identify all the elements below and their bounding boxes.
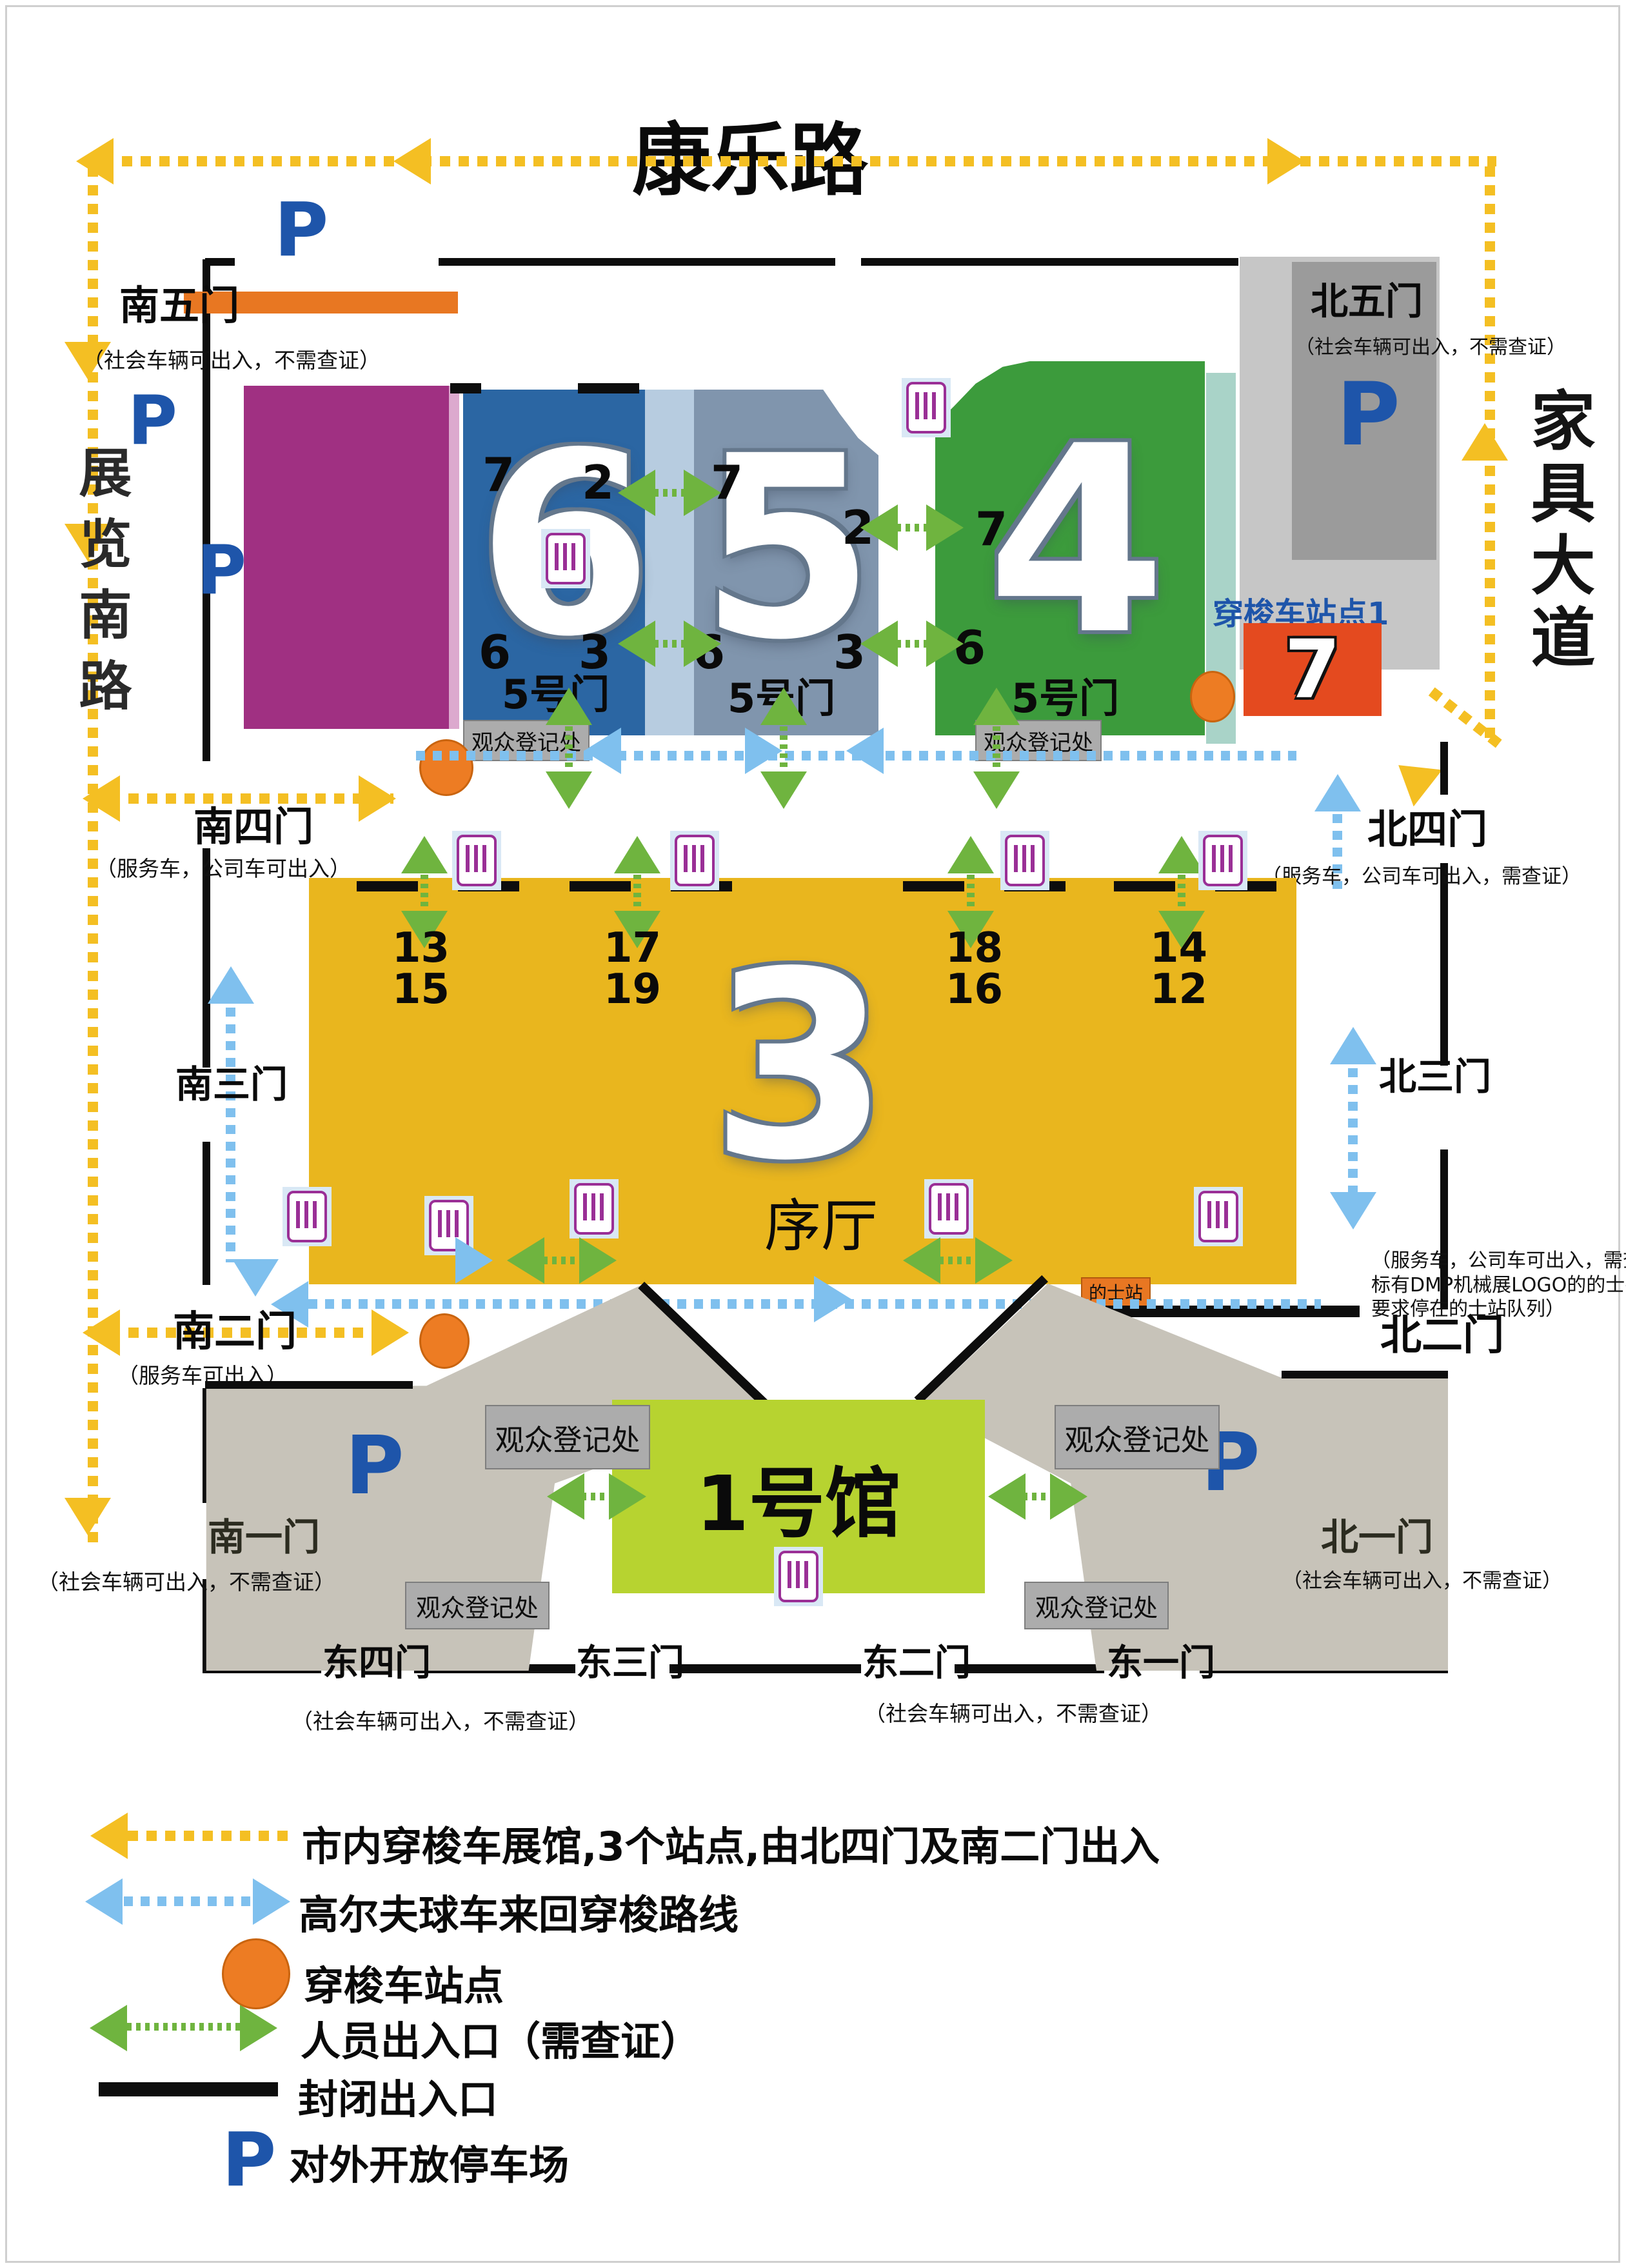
legend-golf-arrow-icon — [253, 1878, 290, 1925]
golf-route-arrow-icon — [745, 728, 782, 774]
restaurant-icon — [541, 529, 590, 588]
legend-shuttle-text: 市内穿梭车展馆,3个站点,由北四门及南二门出入 — [302, 1814, 1160, 1872]
gate-east3-label: 东三门 — [576, 1644, 684, 1684]
legend-parking-icon: P — [222, 2124, 276, 2198]
legend-personnel-text: 人员出入口（需查证） — [301, 2009, 700, 2067]
hall-3-number: 3 — [709, 939, 890, 1197]
personnel-entrance-arrow-icon — [546, 771, 592, 809]
personnel-entrance-arrow-icon — [973, 771, 1020, 809]
boundary-right — [1440, 742, 1448, 795]
door-number-pair: 14 12 — [1119, 928, 1238, 1010]
personnel-entrance-dash — [1023, 1493, 1051, 1500]
personnel-entrance-arrow-icon — [546, 688, 592, 725]
personnel-entrance-dash — [993, 726, 1000, 770]
road-zhanlan-label: 展览南路 — [62, 445, 139, 729]
golf-route-arrow-icon — [846, 728, 884, 774]
gate-south1-label: 南一门 — [208, 1517, 320, 1558]
personnel-entrance-arrow-icon — [926, 504, 964, 551]
boundary-bottom — [955, 1664, 1104, 1673]
personnel-entrance-dash — [543, 1257, 580, 1264]
registration-label: 观众登记处 — [416, 1588, 539, 1624]
gate-east1-label: 东一门 — [1107, 1644, 1215, 1684]
personnel-entrance-arrow-icon — [926, 621, 964, 667]
restaurant-icon — [1194, 1187, 1243, 1246]
legend-station-icon — [222, 1938, 290, 2009]
shuttle-route-arrow-icon — [359, 775, 396, 822]
personnel-entrance-arrow-icon — [684, 621, 721, 667]
shuttle-station-icon — [1190, 671, 1235, 722]
gate-north4-note: （服务车，公司车可出入，需查证） — [1262, 864, 1581, 890]
personnel-entrance-arrow-icon — [973, 688, 1020, 725]
personnel-entrance-arrow-icon — [547, 1473, 584, 1520]
golf-route-line — [1348, 1068, 1358, 1192]
restaurant-icon — [774, 1547, 823, 1606]
shuttle-route-arrow-icon — [393, 138, 431, 184]
gate-north2-note-line1: （服务车，公司车可出入，需查证 — [1371, 1249, 1626, 1273]
boundary-left — [203, 1142, 210, 1285]
closed-entrance-line — [1282, 1371, 1448, 1378]
shuttle-route-arrow-icon — [83, 775, 120, 822]
gate-north5-label: 北五门 — [1311, 281, 1423, 323]
closed-entrance-dash — [357, 881, 418, 891]
personnel-entrance-dash — [897, 640, 927, 648]
personnel-entrance-arrow-icon — [614, 836, 660, 873]
personnel-entrance-dash — [780, 726, 788, 770]
registration-box: 观众登记处 — [1024, 1582, 1169, 1629]
golf-route-arrow-icon — [455, 1237, 493, 1284]
hall-7-number: 7 — [1285, 623, 1341, 717]
gate-north4-label: 北四门 — [1367, 808, 1487, 851]
gate-south4-label: 南四门 — [193, 805, 313, 849]
golf-route-arrow-icon — [584, 728, 621, 774]
restaurant-icon — [902, 378, 951, 437]
personnel-entrance-arrow-icon — [760, 771, 807, 809]
personnel-entrance-dash — [1178, 875, 1185, 910]
shuttle-route-arrow-icon — [372, 1309, 409, 1356]
door-number: 7 — [482, 452, 515, 498]
shuttle-route-arrow-icon — [1267, 138, 1305, 184]
personnel-entrance-dash — [582, 1493, 610, 1500]
gate-east-note-right: （社会车辆可出入，不需查证） — [864, 1700, 1162, 1727]
personnel-entrance-arrow-icon — [1050, 1473, 1087, 1520]
gate-south5-label: 南五门 — [119, 284, 239, 328]
parking-icon: P — [274, 194, 328, 268]
legend-personnel-arrow-icon — [90, 2005, 127, 2051]
closed-entrance-line — [205, 1381, 413, 1389]
registration-label: 观众登记处 — [1064, 1417, 1209, 1458]
personnel-entrance-arrow-icon — [618, 621, 655, 667]
golf-route-line — [226, 1008, 235, 1262]
closed-entrance-dash — [1114, 881, 1175, 891]
gate-east-note-left: （社会车辆可出入，不需查证） — [292, 1708, 590, 1735]
personnel-entrance-arrow-icon — [579, 1237, 617, 1284]
gate-north3-label: 北三门 — [1379, 1057, 1491, 1098]
gate-north2-note: （服务车，公司车可出入，需查证 标有DMP机械展LOGO的的士有限放入， 要求停… — [1371, 1249, 1626, 1322]
closed-entrance-dash — [903, 881, 964, 891]
hall-7: 7 — [1244, 623, 1382, 716]
hall-6-5-corridor — [645, 390, 694, 735]
legend-parking-text: 对外开放停车场 — [289, 2133, 569, 2191]
closed-entrance-dash — [450, 383, 481, 393]
shuttle-station-icon — [419, 739, 473, 796]
parking-icon: P — [1336, 371, 1400, 458]
gate-north5-note: （社会车辆可出入，不需查证） — [1295, 335, 1566, 360]
door-number: 7 — [975, 506, 1007, 552]
shuttle-route-arrow-icon — [83, 1309, 120, 1356]
shuttle-route-arrow-icon — [1462, 423, 1508, 461]
legend-personnel-dash — [127, 2023, 242, 2031]
personnel-entrance-dash — [897, 524, 927, 532]
personnel-entrance-dash — [421, 875, 428, 910]
hall-1-label: 1号馆 — [696, 1442, 901, 1552]
personnel-entrance-arrow-icon — [975, 1237, 1013, 1284]
door-number-pair: 18 16 — [915, 928, 1034, 1010]
personnel-entrance-arrow-icon — [988, 1473, 1026, 1520]
personnel-entrance-arrow-icon — [684, 470, 721, 516]
parking-icon: P — [128, 387, 177, 455]
personnel-entrance-dash — [654, 640, 685, 648]
restaurant-icon — [570, 1179, 619, 1238]
legend-personnel-arrow-icon — [240, 2005, 277, 2051]
registration-box: 观众登记处 — [1055, 1405, 1220, 1469]
personnel-entrance-arrow-icon — [860, 504, 898, 551]
restaurant-icon — [452, 831, 501, 890]
golf-route-arrow-icon — [814, 1276, 851, 1322]
parking-icon: P — [345, 1426, 404, 1506]
boundary-right — [1440, 863, 1448, 1066]
legend-station-text: 穿梭车站点 — [304, 1953, 504, 2011]
legend-closed-text: 封闭出入口 — [298, 2067, 498, 2125]
golf-route-arrow-icon — [1330, 1192, 1376, 1229]
personnel-entrance-dash — [654, 489, 685, 497]
gate-south2-label: 南二门 — [173, 1309, 297, 1355]
gate-south3-label: 南三门 — [175, 1064, 288, 1106]
personnel-entrance-arrow-icon — [947, 836, 994, 873]
personnel-entrance-arrow-icon — [618, 470, 655, 516]
lobby-label: 序厅 — [764, 1180, 878, 1262]
personnel-entrance-dash — [565, 726, 573, 770]
legend-golf-line — [124, 1896, 253, 1906]
restaurant-icon — [924, 1179, 973, 1238]
personnel-entrance-arrow-icon — [760, 688, 807, 725]
personnel-entrance-arrow-icon — [609, 1473, 646, 1520]
boundary-left — [203, 259, 210, 761]
gate-east4-label: 东四门 — [322, 1644, 431, 1684]
restaurant-icon — [670, 831, 719, 890]
shuttle-route-arrow-icon — [64, 1498, 111, 1535]
door-number-pair: 17 19 — [573, 928, 692, 1010]
gate-east2-label: 东二门 — [862, 1644, 971, 1684]
parking-icon: P — [197, 537, 246, 604]
gate-north2-label: 北二门 — [1380, 1313, 1504, 1358]
personnel-entrance-dash — [967, 875, 975, 910]
gate-north1-label: 北一门 — [1321, 1517, 1433, 1558]
shuttle-station-icon — [419, 1313, 470, 1369]
legend-golf-text: 高尔夫球车来回穿梭路线 — [299, 1882, 739, 1940]
gate-north1-note: （社会车辆可出入，不需查证） — [1282, 1569, 1562, 1594]
golf-route-arrow-icon — [208, 966, 254, 1004]
road-jiaju-label: 家具大道 — [1511, 387, 1604, 676]
golf-route-arrow-icon — [1314, 774, 1361, 811]
door5-label: 5号门 — [1011, 666, 1119, 724]
closed-entrance-dash — [578, 383, 639, 393]
closed-entrance-dash — [570, 881, 631, 891]
shuttle-route-line — [110, 793, 393, 804]
registration-box: 观众登记处 — [405, 1582, 550, 1629]
road-kangle-label: 康乐路 — [632, 97, 868, 211]
restaurant-icon — [283, 1187, 332, 1246]
hall-4-number: 4 — [987, 413, 1155, 671]
gate-north2-note-line2: 标有DMP机械展LOGO的的士有限放入， — [1371, 1273, 1626, 1298]
legend-golf-arrow-icon — [85, 1878, 123, 1925]
personnel-entrance-arrow-icon — [860, 621, 898, 667]
boundary-top — [861, 258, 1238, 266]
gate-south5-note: （社会车辆可出入，不需查证） — [83, 347, 381, 373]
personnel-entrance-dash — [633, 875, 641, 910]
registration-label: 观众登记处 — [1035, 1588, 1158, 1624]
boundary-top — [439, 258, 835, 266]
gate-south1-note: （社会车辆可出入，不需查证） — [37, 1569, 335, 1595]
legend-shuttle-line — [128, 1831, 289, 1841]
personnel-entrance-arrow-icon — [401, 836, 448, 873]
legend-shuttle-arrow-icon — [90, 1813, 128, 1859]
registration-box: 观众登记处 — [485, 1405, 650, 1469]
restaurant-icon — [1000, 831, 1049, 890]
personnel-entrance-dash — [939, 1257, 977, 1264]
golf-route-arrow-icon — [1330, 1027, 1376, 1064]
personnel-entrance-arrow-icon — [507, 1237, 544, 1284]
legend-closed-line — [99, 2082, 278, 2096]
restaurant-icon — [1198, 831, 1247, 890]
door-number-pair: 13 15 — [361, 928, 481, 1010]
exhibition-venue-map: 康乐路 展览南路 家具大道 P 南五门 （社会车辆可出入，不需查证） 北五门 （… — [0, 0, 1626, 2268]
personnel-entrance-arrow-icon — [903, 1237, 940, 1284]
registration-label: 观众登记处 — [495, 1417, 640, 1458]
boundary-bottom — [669, 1664, 861, 1673]
door-number: 2 — [582, 459, 614, 506]
hall-purple — [244, 386, 459, 729]
